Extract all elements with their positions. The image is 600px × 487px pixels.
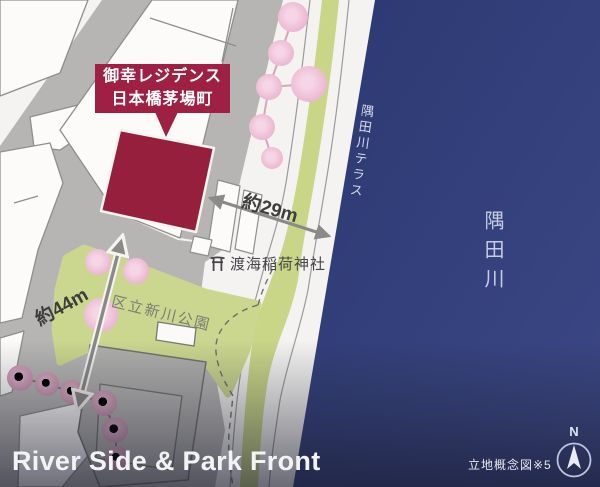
property-name-line1: 御幸レジデンス [103, 66, 222, 88]
shrine-name: 渡海稲荷神社 [230, 253, 326, 274]
site-concept-map: 御幸レジデンス 日本橋茅場町 約29m 約44m 渡海稲荷神社 区立新川公園 隅… [0, 0, 600, 487]
tree-circle [291, 66, 327, 102]
shrine-label: 渡海稲荷神社 [210, 253, 326, 274]
property-label: 御幸レジデンス 日本橋茅場町 [95, 64, 230, 113]
block [190, 236, 212, 256]
map-artwork [0, 0, 600, 487]
compass-north-label: N [553, 424, 595, 439]
tree-circle [85, 249, 111, 275]
tree-circle [249, 114, 275, 140]
map-caption: 立地概念図※5 [468, 456, 552, 473]
tree-circle [256, 74, 282, 100]
compass-icon [554, 440, 594, 480]
tree-circle [261, 147, 283, 169]
tree-circle [268, 40, 294, 66]
headline: River Side & Park Front [12, 446, 321, 477]
torii-icon [210, 255, 225, 272]
compass: N [553, 424, 595, 485]
river-name-label: 隅田川 [478, 210, 507, 297]
property-name-line2: 日本橋茅場町 [111, 89, 213, 111]
tree-circle [278, 2, 308, 32]
tree-circle [123, 258, 149, 284]
